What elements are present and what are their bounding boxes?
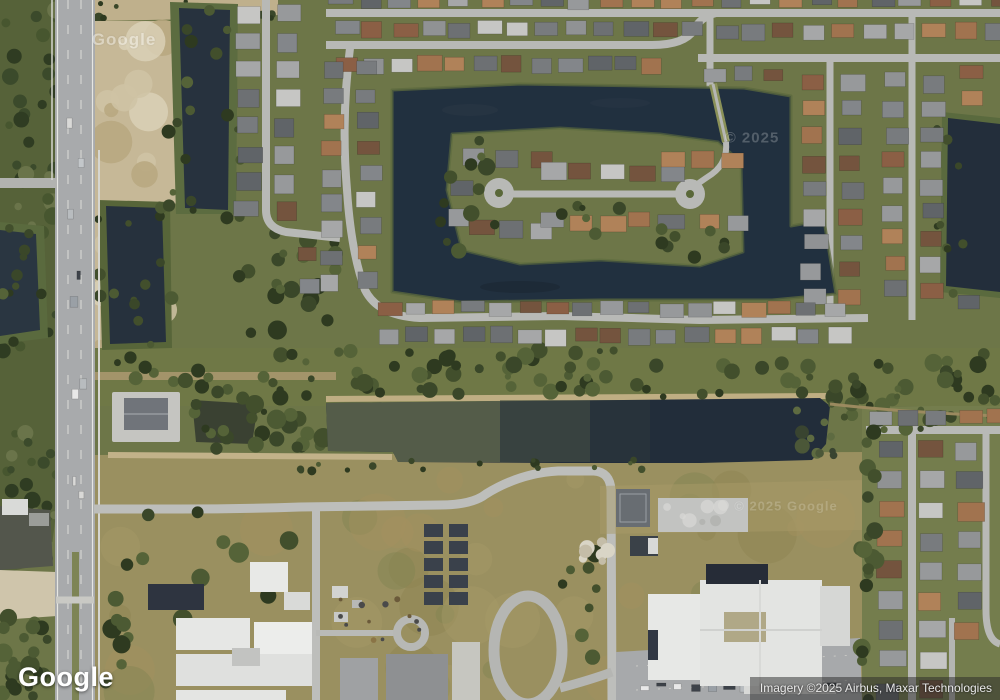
imagery-attribution: Imagery ©2025 Airbus, Maxar Technologies xyxy=(750,677,1000,700)
satellite-imagery[interactable] xyxy=(0,0,1000,700)
google-logo[interactable]: Google xyxy=(18,662,114,693)
map-viewport[interactable]: Google © 2025 © 2025 Google Google Image… xyxy=(0,0,1000,700)
